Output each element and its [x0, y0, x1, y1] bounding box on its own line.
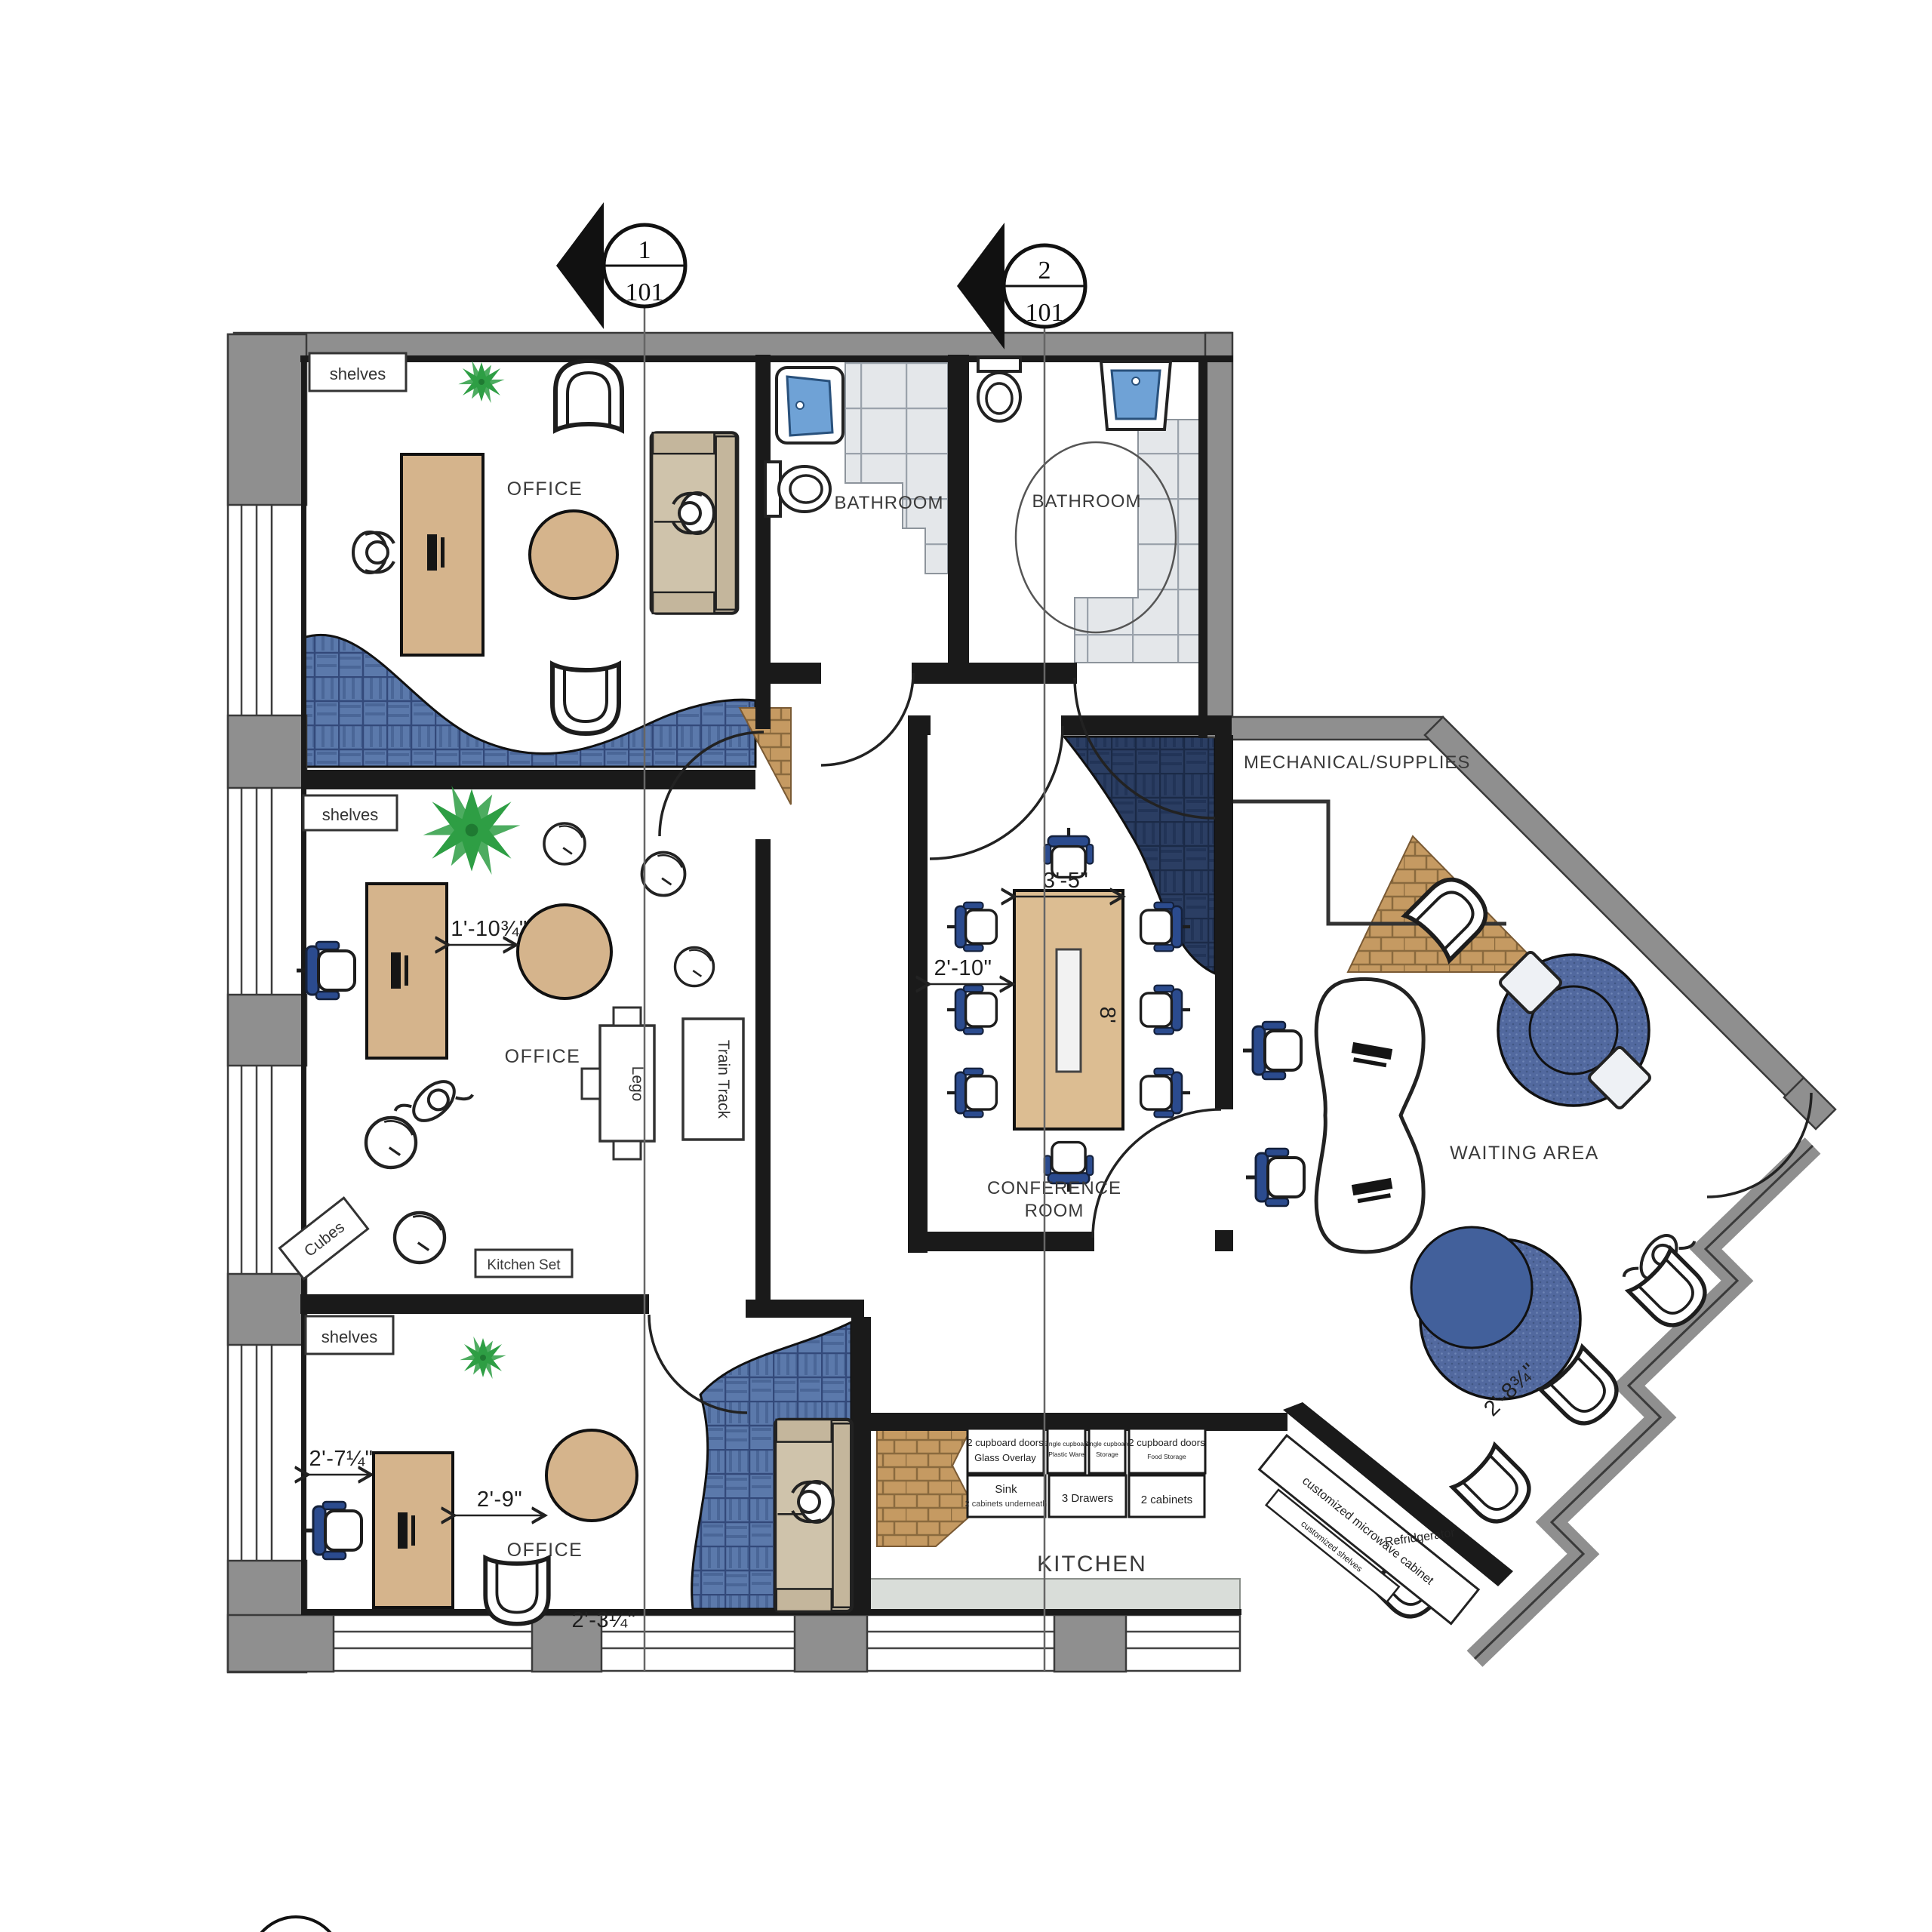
cabinet-label: Sink — [995, 1483, 1017, 1496]
round-table — [546, 1430, 637, 1521]
dim-conf-length: 8' — [1095, 1007, 1119, 1024]
cabinet-label: 2 cabinets — [1141, 1494, 1192, 1506]
toilet-icon — [765, 462, 830, 516]
armchair — [485, 1558, 549, 1623]
train-track-table: Train Track — [683, 1019, 743, 1140]
toilet-icon — [978, 358, 1020, 421]
conference-label-1: CONFERENCE — [987, 1178, 1121, 1198]
computer-icon — [398, 1512, 415, 1549]
rug-pouf — [1411, 1227, 1532, 1348]
right-wall — [1205, 333, 1232, 737]
dim-conf-wall: 2'-10" — [934, 956, 992, 980]
train-track-label: Train Track — [715, 1040, 732, 1119]
dim-office3-chair: 2'-3¼" — [572, 1608, 636, 1632]
office1-label: OFFICE — [507, 478, 583, 500]
round-table — [530, 511, 617, 598]
shelves-label: shelves — [330, 365, 386, 383]
office2-label: OFFICE — [505, 1046, 581, 1067]
dim-office2-table: 1'-10¾" — [451, 917, 528, 941]
cabinet-label: Single cupboard — [1084, 1440, 1131, 1447]
conference-label-2: ROOM — [1025, 1201, 1084, 1221]
dim-office3-table: 2'-9" — [477, 1487, 522, 1512]
cabinet-label: 2 cabinets underneath — [965, 1500, 1048, 1509]
marker-sheet: 101 — [626, 278, 664, 306]
sink-icon — [777, 368, 843, 443]
pouf — [366, 1118, 416, 1168]
lego-label: Lego — [629, 1066, 646, 1102]
computer-icon — [427, 534, 445, 571]
sink-icon — [1101, 361, 1171, 429]
marker-sheet: 101 — [1026, 299, 1064, 327]
kitchen-set-label: Kitchen Set — [487, 1257, 561, 1273]
dim-office3-wall: 2'-7¼" — [309, 1447, 374, 1471]
waiting-area-label: WAITING AREA — [1450, 1143, 1599, 1164]
pouf — [395, 1213, 445, 1263]
mechanical-label: MECHANICAL/SUPPLIES — [1244, 752, 1470, 773]
bathroom2-label: BATHROOM — [1032, 491, 1142, 512]
cabinet-label: Glass Overlay — [974, 1452, 1036, 1463]
round-table — [518, 905, 611, 998]
armchair — [555, 361, 622, 430]
mechanical-top-wall — [1230, 717, 1443, 740]
shelves-label: shelves — [322, 805, 379, 824]
cabinet-label: 2 cupboard doors — [967, 1437, 1044, 1448]
cabinet-label: Plastic Ware — [1048, 1451, 1084, 1458]
bathroom1-label: BATHROOM — [835, 493, 944, 513]
cabinet-label: 2 cupboard doors — [1128, 1437, 1205, 1448]
cabinet-label: Storage — [1096, 1451, 1118, 1458]
dim-conf-width: 3'-5" — [1043, 869, 1088, 893]
cabinet-label: Food Storage — [1147, 1453, 1186, 1460]
table-inset — [1057, 949, 1081, 1072]
marker-number: 1 — [638, 236, 651, 264]
pouf — [544, 823, 585, 864]
computer-icon — [391, 952, 408, 989]
armchair — [552, 664, 619, 734]
shelves-label: shelves — [321, 1327, 378, 1346]
cabinet-label: 3 Drawers — [1062, 1492, 1113, 1505]
marker-number: 2 — [1038, 257, 1051, 285]
kitchen-label: KITCHEN — [1037, 1552, 1147, 1577]
pouf — [642, 853, 685, 896]
cabinet-label: Single cupboard — [1043, 1440, 1090, 1447]
pouf — [675, 948, 714, 986]
floor-plan: shelves OFFICE shelves 1'-10¾" OFFICE Cu… — [0, 0, 1932, 1932]
